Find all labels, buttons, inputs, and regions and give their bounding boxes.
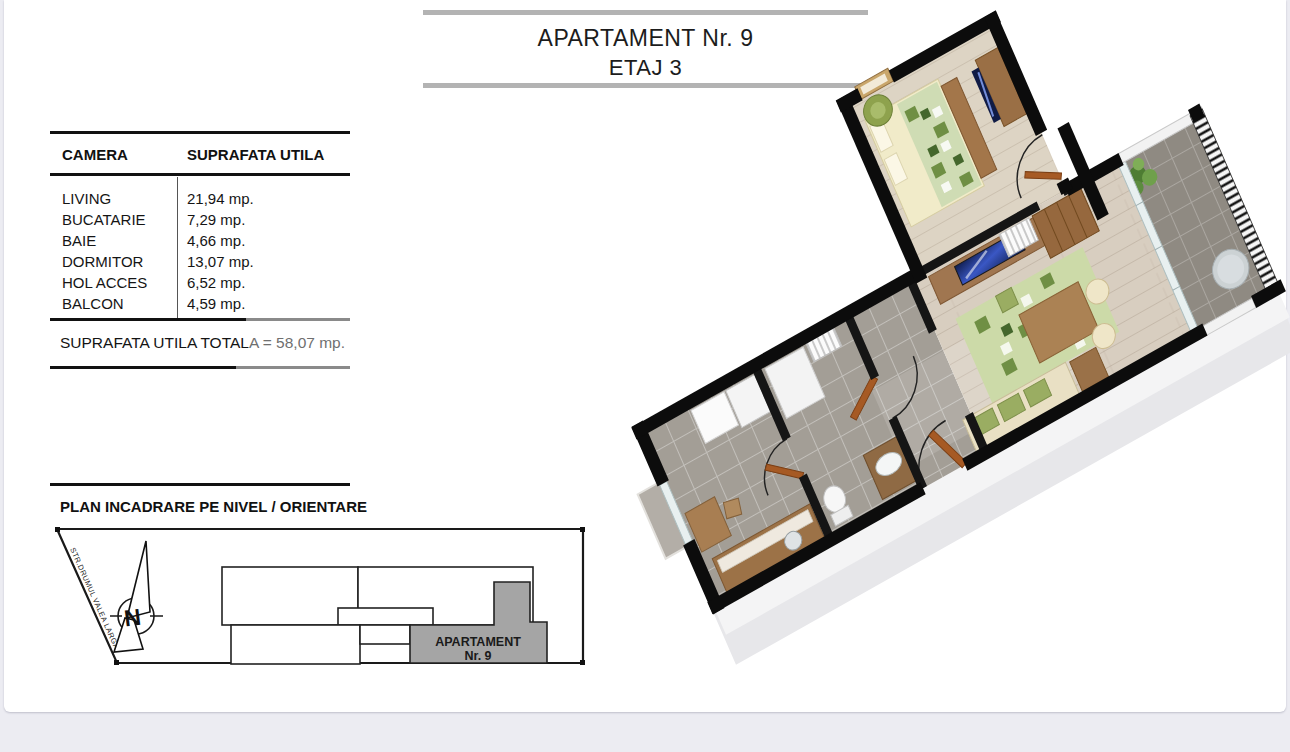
site-plan-drawing: STR.DRUMUL VALEA LARGA N APARTAMENT Nr. … [40,515,600,685]
table-rule-bottom-left [50,366,236,369]
table-rule-header [50,173,350,176]
street-label: STR.DRUMUL VALEA LARGA [68,546,121,651]
table-row-area: 13,07 mp. [187,251,254,272]
table-rule-top [50,131,350,134]
floorplan-3d-render [580,8,1290,692]
total-area-line: SUPRAFATA UTILA TOTALA = 58,07 mp. [60,334,345,352]
apartment-footprint-label-2: Nr. 9 [464,649,491,663]
section-rule [50,483,350,486]
table-column-divider [177,177,178,318]
table-row-area: 4,59 mp. [187,293,245,314]
table-header-camera: CAMERA [62,146,128,163]
building-footprint [222,567,547,664]
table-row-room: BALCON [62,293,124,314]
table-rule-body-right [246,318,350,321]
table-row-room: BAIE [62,230,96,251]
table-header-suprafata: SUPRAFATA UTILA [187,146,324,163]
apartment-footprint-label-1: APARTAMENT [435,635,521,649]
table-row-room: DORMITOR [62,251,143,272]
compass-icon: N [110,541,163,652]
table-row-room: HOL ACCES [62,272,147,293]
document-canvas: APARTAMENT Nr. 9 ETAJ 3 CAMERA SUPRAFATA… [0,0,1290,752]
table-row-area: 4,66 mp. [187,230,245,251]
table-row-area: 21,94 mp. [187,188,254,209]
section-heading: PLAN INCADRARE PE NIVEL / ORIENTARE [60,498,367,515]
compass-north-letter: N [123,604,143,632]
table-row-room: BUCATARIE [62,209,146,230]
table-rule-bottom-right [236,366,350,369]
table-row-room: LIVING [62,188,111,209]
table-rule-body-left [50,318,246,321]
table-row-area: 6,52 mp. [187,272,245,293]
table-row-area: 7,29 mp. [187,209,245,230]
total-area-label: SUPRAFATA UTILA TOTAL [60,334,249,351]
total-area-value: A = 58,07 mp. [249,334,345,351]
